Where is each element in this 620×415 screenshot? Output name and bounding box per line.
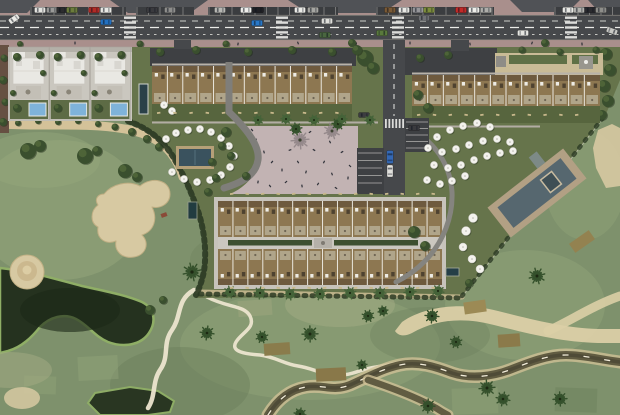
moving-car bbox=[320, 32, 331, 38]
central-row-south bbox=[218, 249, 442, 285]
parked-car bbox=[469, 7, 480, 13]
parked-car bbox=[563, 7, 574, 13]
lake-deep bbox=[20, 288, 120, 332]
pedestrian bbox=[581, 43, 582, 46]
parked-car bbox=[253, 7, 264, 13]
pedestrian bbox=[409, 42, 410, 45]
deck-hut bbox=[496, 56, 506, 67]
plaza-figure bbox=[347, 177, 348, 180]
golf-palm bbox=[357, 360, 367, 370]
planter bbox=[334, 240, 418, 246]
lap-pool-mid bbox=[188, 202, 197, 219]
parked-car bbox=[67, 7, 78, 13]
bunker-round-core bbox=[23, 266, 32, 275]
parked-car bbox=[47, 7, 58, 13]
townhouse-row-east bbox=[412, 75, 600, 106]
planter bbox=[228, 240, 312, 246]
parked-car bbox=[89, 7, 100, 13]
sand-area bbox=[4, 387, 40, 409]
community-car bbox=[387, 151, 394, 164]
moving-car bbox=[101, 19, 112, 25]
lawn-palm bbox=[365, 115, 375, 125]
moving-car bbox=[419, 15, 430, 21]
parked-car bbox=[585, 7, 596, 13]
deck-hut-vent bbox=[584, 60, 588, 64]
moving-car bbox=[377, 30, 388, 36]
pool-southeast bbox=[446, 268, 459, 276]
parked-car bbox=[308, 7, 319, 13]
street bbox=[0, 0, 620, 48]
parking-lot-west bbox=[150, 48, 356, 66]
parked-car bbox=[165, 7, 176, 13]
parked-car bbox=[35, 7, 46, 13]
tee-box bbox=[498, 333, 521, 348]
moving-car bbox=[322, 18, 333, 24]
site-plan-svg bbox=[0, 0, 620, 415]
pad-feature bbox=[321, 241, 325, 245]
villa-2 bbox=[50, 47, 90, 120]
moving-car bbox=[518, 30, 529, 36]
parked-car bbox=[101, 7, 112, 13]
lawn-palm bbox=[374, 287, 386, 299]
garden-strip bbox=[412, 106, 600, 123]
parked-car bbox=[385, 7, 396, 13]
tee-box bbox=[264, 342, 291, 356]
villa-1 bbox=[9, 47, 49, 120]
parked-car bbox=[295, 7, 306, 13]
parked-car bbox=[399, 7, 410, 13]
lawn-palm bbox=[404, 286, 416, 298]
golf-palm bbox=[425, 309, 439, 323]
inner-parking bbox=[357, 148, 384, 194]
community-car bbox=[409, 125, 420, 131]
pedestrian bbox=[74, 42, 75, 45]
driveway bbox=[174, 40, 191, 49]
deck-garden bbox=[509, 55, 567, 64]
parked-car bbox=[413, 7, 424, 13]
villa-block-walk bbox=[8, 47, 132, 52]
lap-pool-west bbox=[139, 84, 148, 114]
parked-car bbox=[215, 7, 226, 13]
townhouse-row-west bbox=[152, 66, 352, 104]
driveway bbox=[451, 40, 469, 51]
parked-car bbox=[574, 7, 585, 13]
parked-car bbox=[424, 7, 435, 13]
plaza-figure bbox=[281, 169, 282, 172]
golf-palm bbox=[421, 399, 435, 413]
parked-car bbox=[456, 7, 467, 13]
villa-3 bbox=[90, 47, 130, 120]
parked-car bbox=[241, 7, 252, 13]
masterplan-aerial-view bbox=[0, 0, 620, 415]
parked-car bbox=[57, 7, 68, 13]
moving-car bbox=[252, 20, 263, 26]
mow-patch bbox=[77, 355, 118, 381]
golf-palm bbox=[553, 392, 567, 406]
community-car bbox=[387, 165, 393, 177]
parked-car bbox=[481, 7, 492, 13]
parked-car bbox=[147, 7, 158, 13]
access-road bbox=[383, 40, 405, 195]
tee-box bbox=[316, 367, 347, 382]
lawn-palm bbox=[337, 114, 347, 124]
parked-car bbox=[596, 7, 607, 13]
golf-palm bbox=[302, 326, 318, 342]
lawn-palm bbox=[281, 114, 291, 124]
golf-palm bbox=[479, 380, 495, 396]
